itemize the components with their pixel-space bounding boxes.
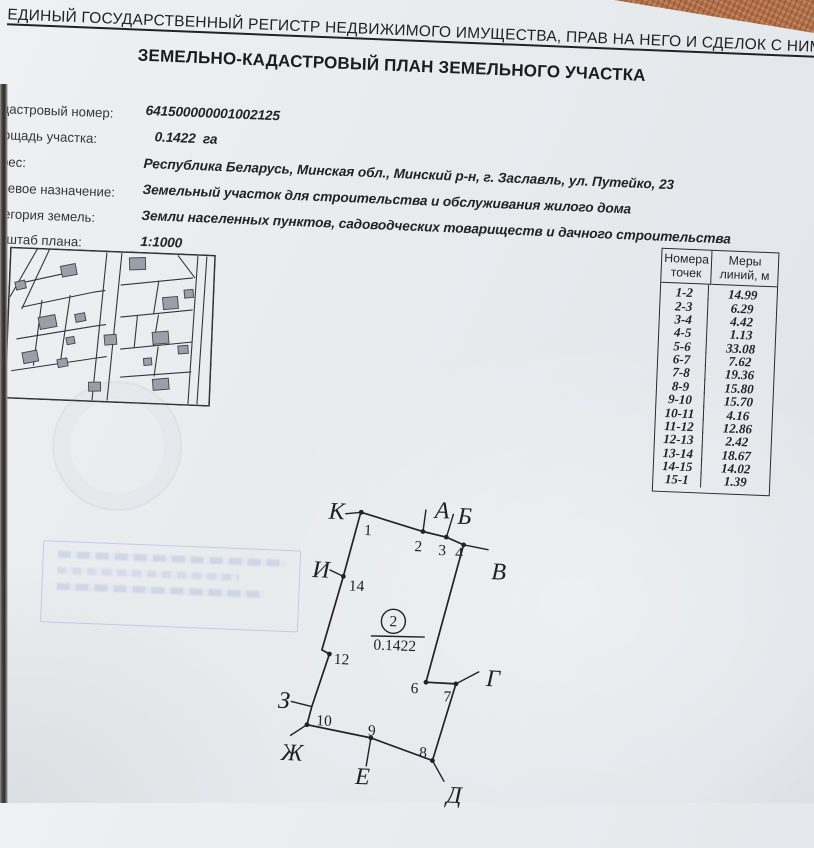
- parcel-plan-drawing: К А Б В И Г З Ж Е Д 1 2 3 4 6 7 8 9 10 1…: [0, 0, 814, 848]
- boundary-letter-e: Е: [354, 764, 371, 791]
- boundary-letter-z: З: [278, 688, 291, 714]
- boundary-letter-g: Г: [485, 666, 502, 693]
- vertex-number-9: 9: [368, 722, 377, 739]
- vertex-number-12: 12: [333, 651, 349, 669]
- vertex-number-1: 1: [364, 522, 372, 539]
- vertex-number-10: 10: [316, 712, 332, 730]
- boundary-letter-a: А: [432, 498, 450, 525]
- parcel-area-annotation: 2 0.1422: [370, 608, 426, 655]
- boundary-letter-k: К: [327, 499, 347, 526]
- boundary-letter-v: В: [491, 559, 507, 586]
- vertex-number-2: 2: [414, 538, 422, 555]
- boundary-letter-zh: Ж: [279, 740, 304, 767]
- boundary-letter-i: И: [311, 557, 332, 584]
- boundary-letter-b: Б: [456, 504, 472, 531]
- boundary-letter-d: Д: [444, 782, 464, 809]
- document-page: ЕДИНЫЙ ГОСУДАРСТВЕННЫЙ РЕГИСТР НЕДВИЖИМО…: [0, 0, 814, 848]
- vertex-number-4: 4: [455, 545, 464, 562]
- page-edge-shadow: [0, 84, 8, 803]
- parcel-number: 2: [389, 613, 397, 630]
- parcel-area-value: 0.1422: [373, 637, 416, 656]
- vertex-number-14: 14: [348, 577, 364, 595]
- vertex-number-7: 7: [443, 688, 452, 705]
- vertex-number-8: 8: [419, 744, 428, 761]
- vertex-number-3: 3: [438, 542, 447, 559]
- vertex-number-6: 6: [410, 680, 419, 697]
